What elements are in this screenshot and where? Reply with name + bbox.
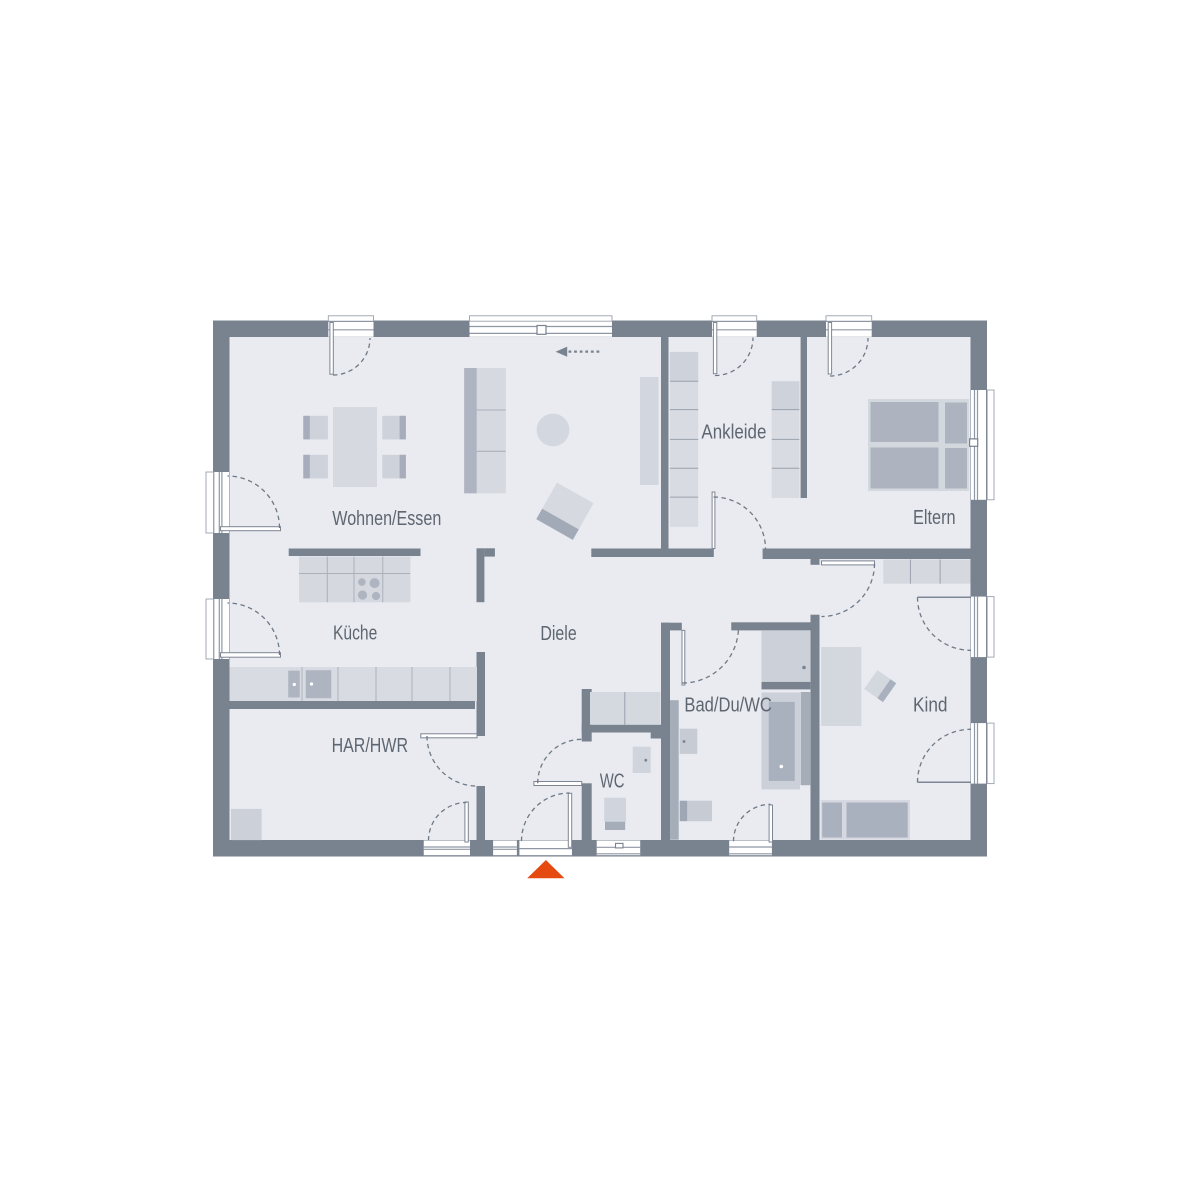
svg-text:Küche: Küche — [333, 623, 377, 645]
svg-text:Wohnen/Essen: Wohnen/Essen — [332, 508, 441, 530]
svg-text:HAR/HWR: HAR/HWR — [332, 735, 408, 757]
svg-text:Diele: Diele — [540, 623, 576, 645]
svg-text:Kind: Kind — [913, 695, 948, 717]
svg-text:Ankleide: Ankleide — [701, 422, 766, 444]
svg-text:Bad/Du/WC: Bad/Du/WC — [684, 695, 772, 717]
svg-text:WC: WC — [600, 771, 625, 793]
svg-text:Eltern: Eltern — [913, 507, 956, 529]
